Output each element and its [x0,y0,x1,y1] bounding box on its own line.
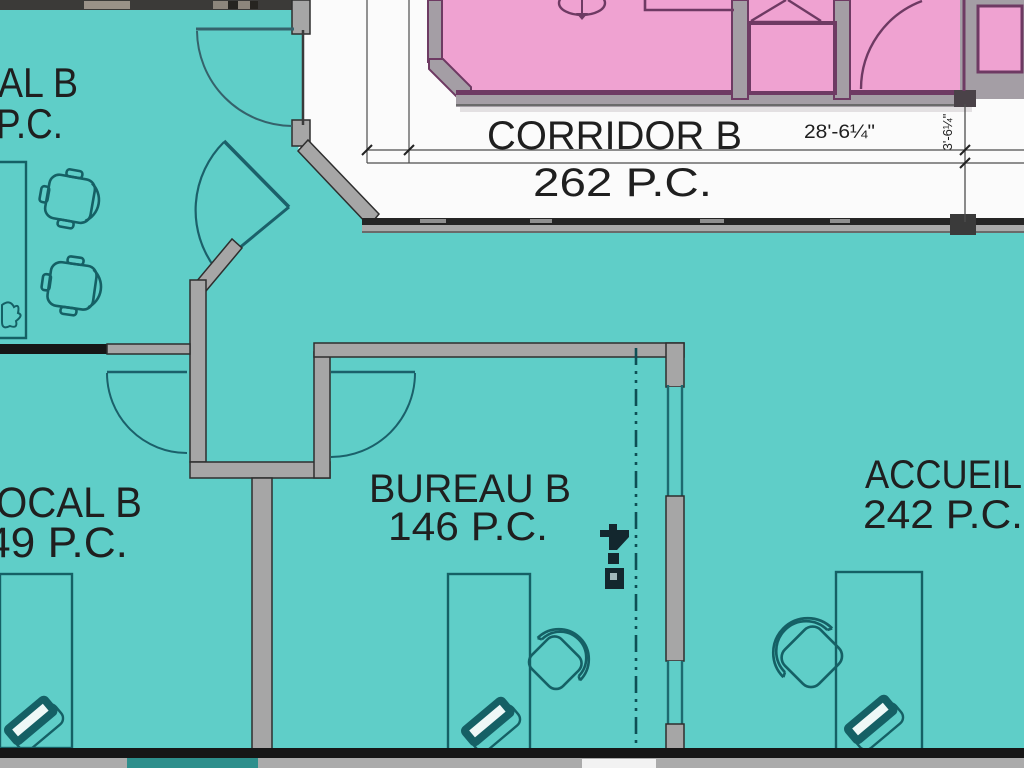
svg-text:28'-6¼": 28'-6¼" [804,122,875,143]
svg-text:ACCUEIL: ACCUEIL [865,453,1022,497]
svg-text:P.C.: P.C. [0,100,63,147]
svg-text:262 P.C.: 262 P.C. [533,161,712,205]
svg-text:146 P.C.: 146 P.C. [388,505,548,549]
svg-text:242 P.C.: 242 P.C. [863,493,1023,537]
svg-text:AL B: AL B [0,59,78,106]
svg-text:3'-6¼": 3'-6¼" [940,113,955,150]
svg-text:49 P.C.: 49 P.C. [0,519,128,567]
svg-text:CORRIDOR B: CORRIDOR B [487,114,742,158]
